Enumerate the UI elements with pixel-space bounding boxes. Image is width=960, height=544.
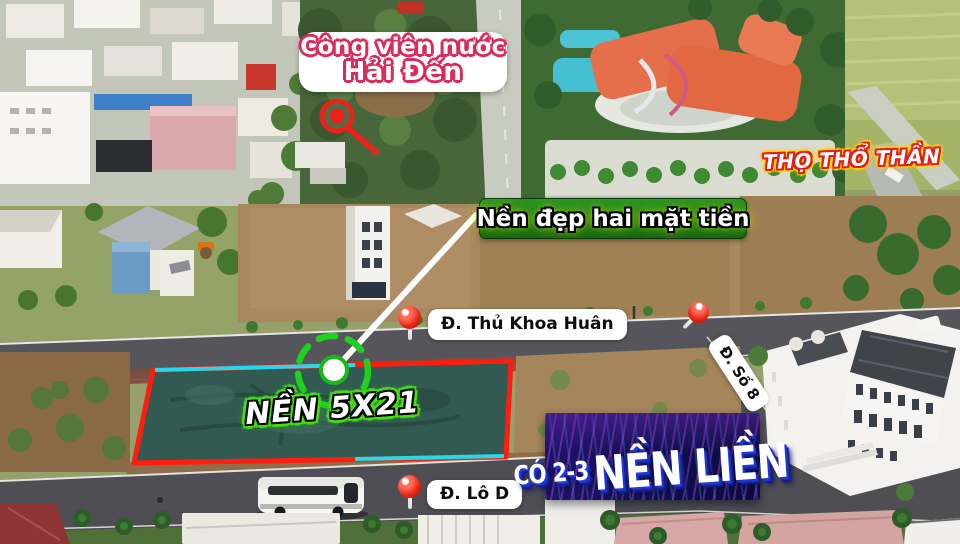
adjacent-plots-banner: CÓ 2-3 NỀN LIỀN [545, 413, 760, 500]
street-label-lo-d: Đ. Lô D [427, 480, 522, 509]
mid-houses [0, 203, 243, 338]
banner-part1: CÓ 2-3 [513, 460, 589, 489]
town-area [0, 0, 328, 218]
real-estate-ad-frame: Công viên nước Hải Đến THỌ THỔ THẦN Nền … [0, 0, 960, 544]
map-pin-icon [398, 306, 421, 329]
pedestrian [157, 497, 163, 503]
water-park-label-line1: Công viên nước [299, 35, 507, 59]
tall-building [346, 206, 390, 300]
feature-label: Nền đẹp hai mặt tiền [479, 198, 747, 239]
banner-part2: NỀN LIỀN [592, 440, 790, 496]
street-label-thu-khoa-huan: Đ. Thủ Khoa Huân [428, 309, 627, 340]
adjacent-plots-banner-text: CÓ 2-3 NỀN LIỀN [512, 440, 789, 501]
water-park-label-line2: Hải Đến [299, 59, 507, 86]
map-pin-icon [398, 475, 421, 498]
water-park-label: Công viên nước Hải Đến [299, 32, 507, 92]
water-park [521, 0, 858, 212]
